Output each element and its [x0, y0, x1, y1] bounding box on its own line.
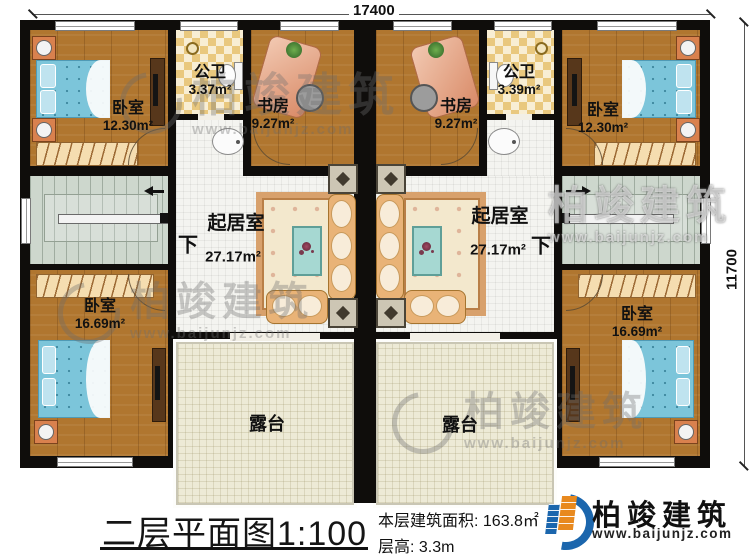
dimension-top-value: 17400	[349, 2, 399, 19]
brand-website: www.baijunjz.com	[592, 526, 733, 541]
room-label-bedroom-bl: 卧室 16.69m²	[75, 298, 125, 332]
terrace-divider-wall	[354, 332, 376, 503]
window-top-bedroom-left	[55, 21, 135, 31]
stair-break-right	[564, 214, 674, 224]
room-label-study-l: 书房 9.27m²	[252, 98, 295, 132]
stair-break-tip	[160, 213, 168, 223]
window-bottom-bedroom-left	[57, 457, 133, 467]
wardrobe-top-right	[594, 142, 696, 166]
brand-logo: 柏竣建筑 www.baijunjz.com	[534, 488, 748, 550]
pillow	[42, 346, 56, 374]
room-label-bath-r: 公卫 3.39m²	[498, 64, 541, 98]
plant	[286, 42, 302, 58]
tv	[572, 74, 577, 106]
bath-lamp	[535, 42, 548, 55]
end-table	[328, 298, 358, 328]
nightstand	[34, 420, 58, 444]
bath-lamp	[186, 42, 199, 55]
sink-right	[488, 128, 520, 155]
terrace-door-left	[230, 333, 320, 341]
stair-arrow-head	[582, 186, 596, 196]
plant	[428, 42, 444, 58]
sofa-cushion	[331, 264, 352, 292]
stair-break-left	[58, 214, 168, 224]
pillow	[676, 90, 692, 114]
room-label-terrace-r: 露台	[442, 411, 478, 437]
end-table	[328, 164, 358, 194]
sofa-cushion	[331, 232, 352, 260]
window-top-bedroom-right	[597, 21, 677, 31]
coffee-table-left	[292, 226, 322, 276]
room-label-living-l-area: 27.17m²	[205, 248, 261, 265]
window-right-stairs	[701, 198, 711, 244]
bed-blanket	[86, 340, 110, 418]
desk-chair	[296, 84, 324, 112]
bath-left-door-gap	[198, 114, 224, 120]
room-label-living-l-name: 起居室	[207, 213, 264, 235]
sofa-cushion	[298, 295, 322, 317]
stair-break-tip	[562, 213, 570, 223]
pillow	[42, 378, 56, 406]
window-bottom-bedroom-right	[599, 457, 675, 467]
pillow	[40, 90, 56, 114]
pillow	[40, 64, 56, 88]
end-table	[376, 298, 406, 328]
floor-plan-page: 柏竣建筑 www.baijunjz.com 柏竣建筑 www.baijunjz.…	[0, 0, 750, 559]
window-top-bath-right	[494, 21, 552, 31]
sofa-cushion	[379, 232, 400, 260]
end-table	[376, 164, 406, 194]
sofa-cushion	[436, 295, 460, 317]
window-left-stairs	[21, 198, 31, 244]
room-label-living-r-name: 起居室	[471, 206, 528, 228]
sofa-cushion	[379, 264, 400, 292]
nightstand	[32, 118, 56, 142]
pillow	[676, 378, 690, 406]
floor-area-label: 本层建筑面积: 163.8㎡	[378, 507, 539, 531]
nightstand	[676, 36, 700, 60]
terrace-door-right	[410, 333, 500, 341]
nightstand	[32, 36, 56, 60]
room-label-bedroom-tl: 卧室 12.30m²	[103, 100, 153, 134]
window-top-bath-left	[180, 21, 238, 31]
stairs-down-label-right: 下	[531, 230, 551, 259]
window-top-study-right	[393, 21, 452, 31]
coffee-table-right	[412, 226, 442, 276]
stair-arrow-right	[566, 190, 582, 193]
pillow	[676, 64, 692, 88]
tv	[570, 366, 575, 400]
bed-blanket	[622, 340, 646, 418]
stairs-down-label-left: 下	[178, 229, 198, 258]
sofa-cushion	[410, 295, 434, 317]
tv	[155, 366, 160, 400]
sofa-cushion	[331, 200, 352, 228]
pillow	[676, 346, 690, 374]
room-label-bedroom-tr: 卧室 12.30m²	[578, 102, 628, 136]
title-underline	[100, 547, 368, 550]
room-label-bath-l: 公卫 3.37m²	[189, 64, 232, 98]
sofa-cushion	[379, 200, 400, 228]
room-label-terrace-l: 露台	[249, 410, 285, 436]
floor-height-label: 层高: 3.3m	[378, 533, 454, 557]
tv	[153, 74, 158, 106]
nightstand	[676, 118, 700, 142]
bath-right-door-gap	[506, 114, 532, 120]
nightstand	[674, 420, 698, 444]
stair-arrow-head	[139, 186, 153, 196]
room-label-study-r: 书房 9.27m²	[435, 98, 478, 132]
sofa-cushion	[272, 295, 296, 317]
sink-left	[212, 128, 244, 155]
dimension-right-value: 11700	[724, 237, 741, 303]
room-label-living-r-area: 27.17m²	[470, 241, 526, 258]
dimension-line-right	[744, 22, 745, 466]
window-top-study-left	[280, 21, 339, 31]
wardrobe-top-left	[36, 142, 138, 166]
room-label-bedroom-br: 卧室 16.69m²	[612, 306, 662, 340]
